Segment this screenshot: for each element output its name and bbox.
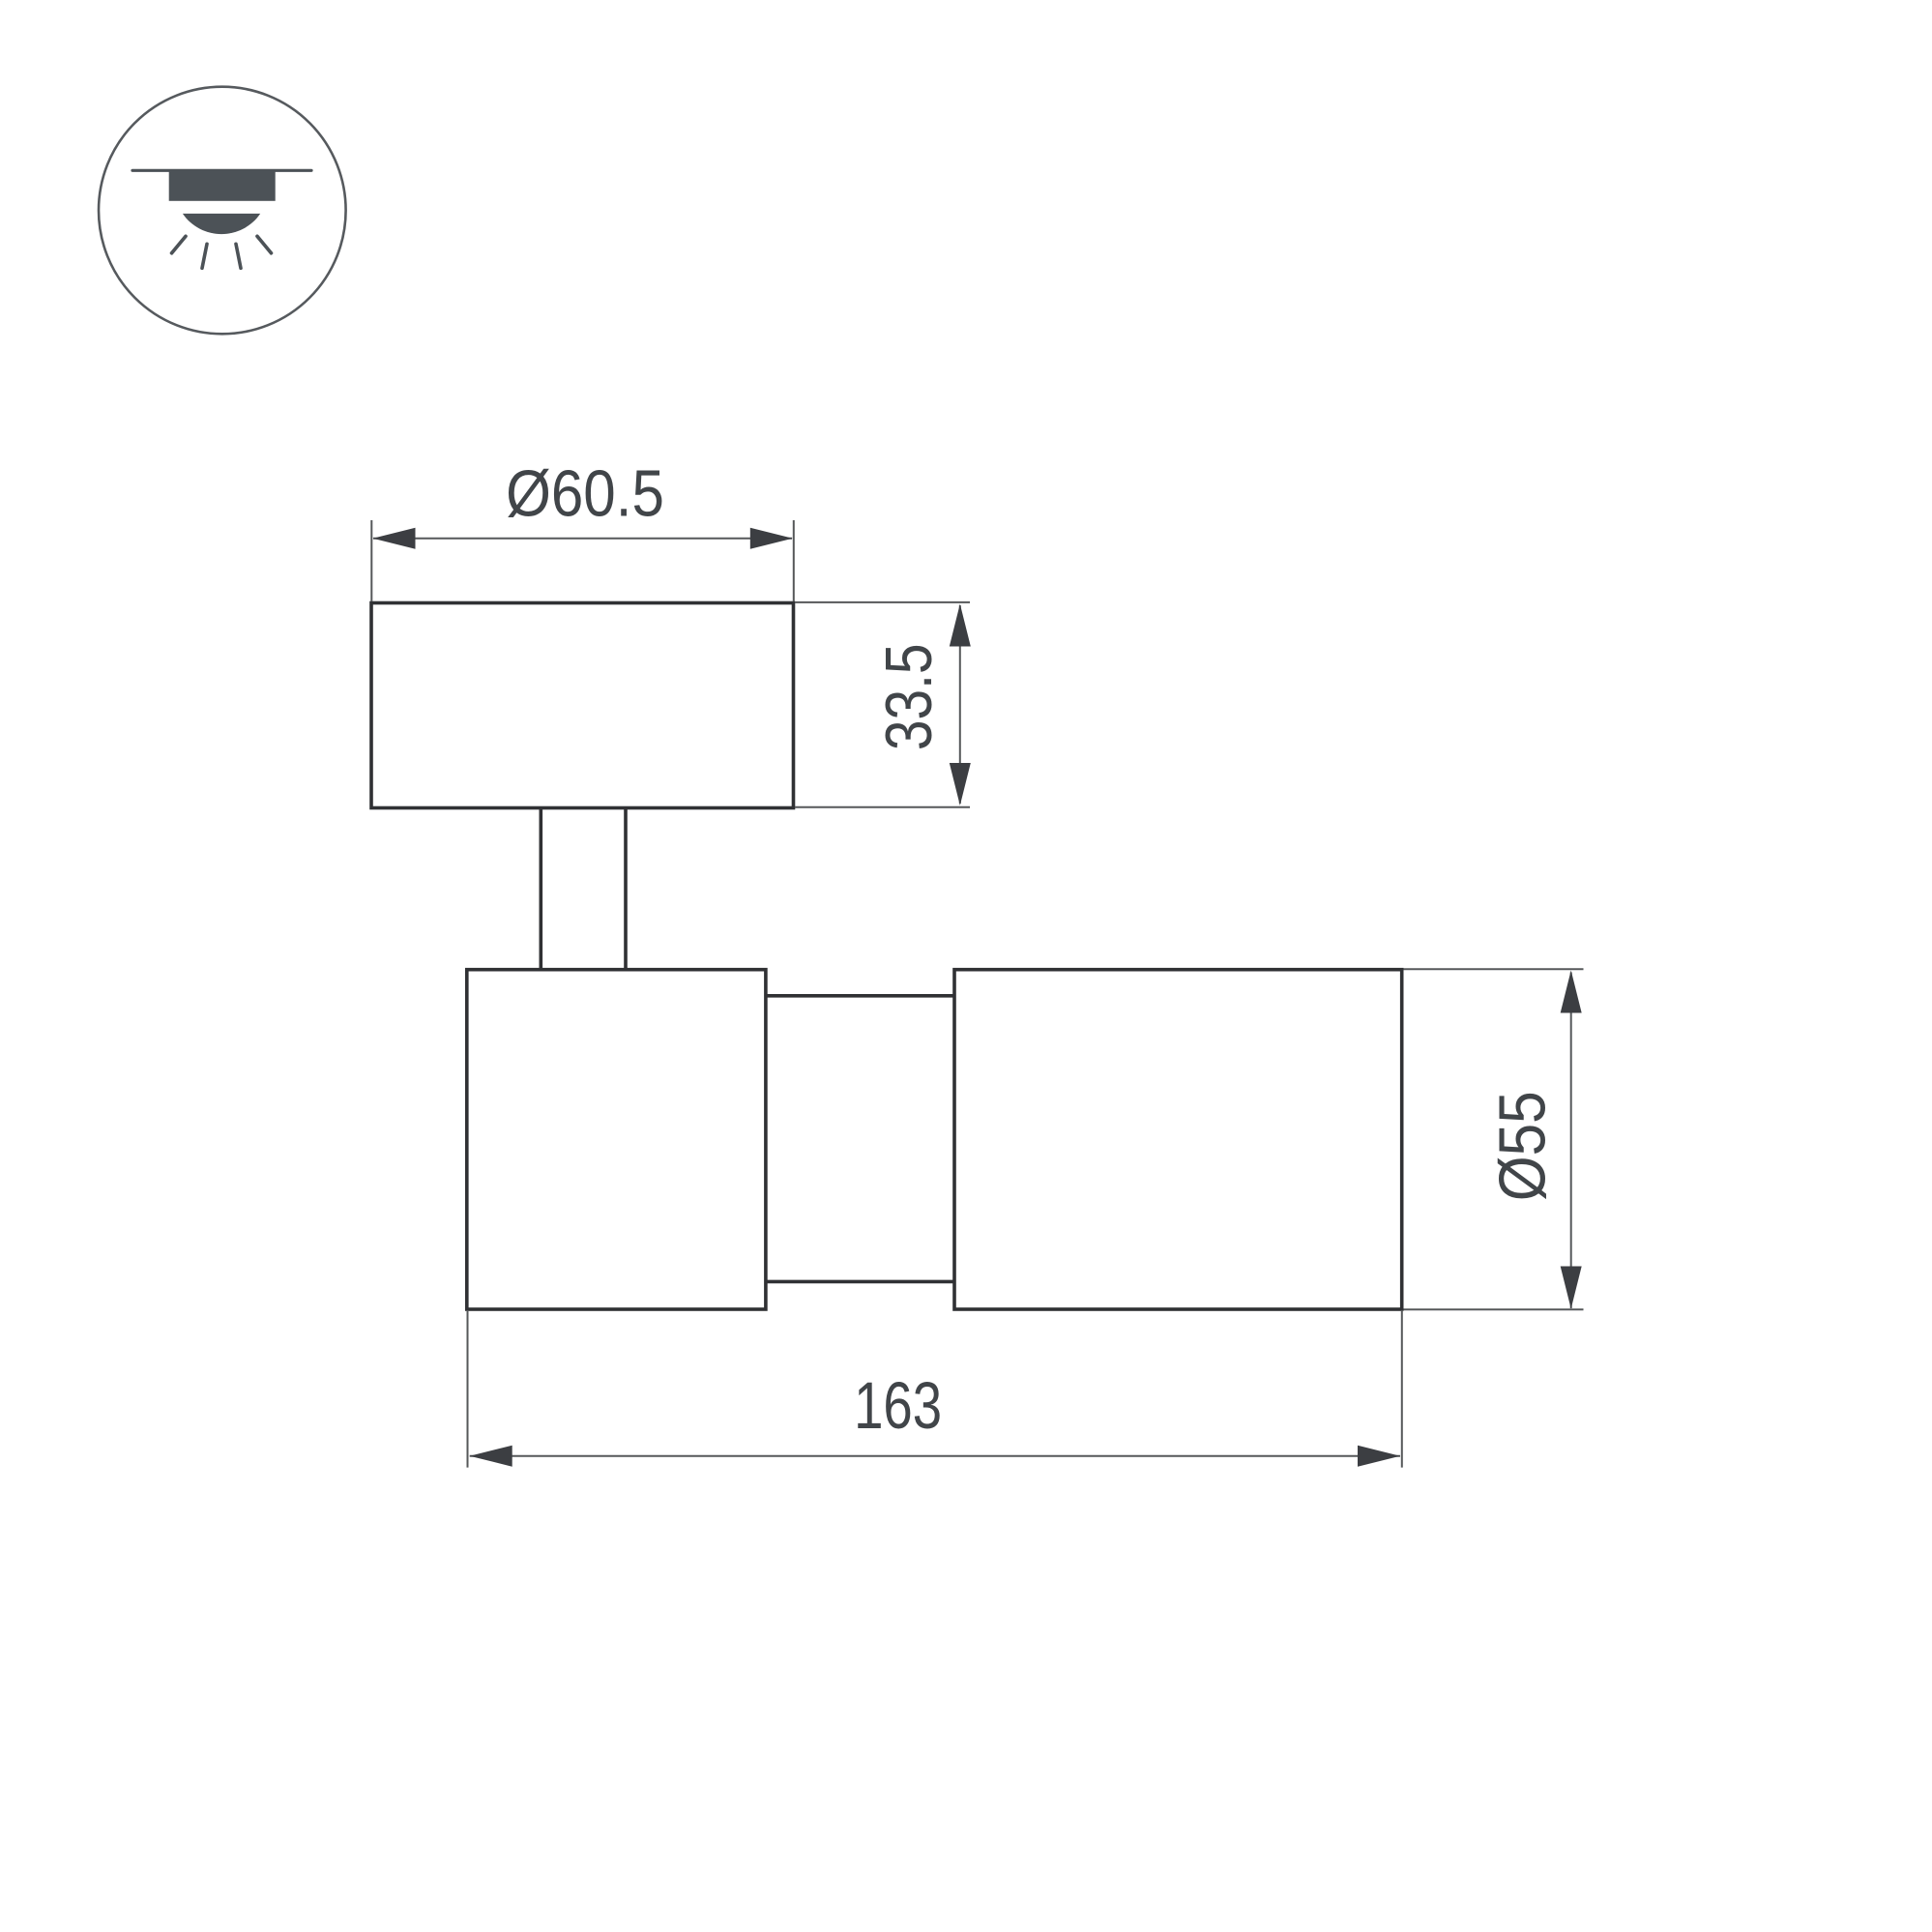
svg-text:Ø60.5: Ø60.5 xyxy=(506,458,664,531)
svg-text:163: 163 xyxy=(854,1368,942,1443)
svg-text:Ø55: Ø55 xyxy=(1486,1091,1559,1201)
svg-text:33.5: 33.5 xyxy=(873,643,946,750)
